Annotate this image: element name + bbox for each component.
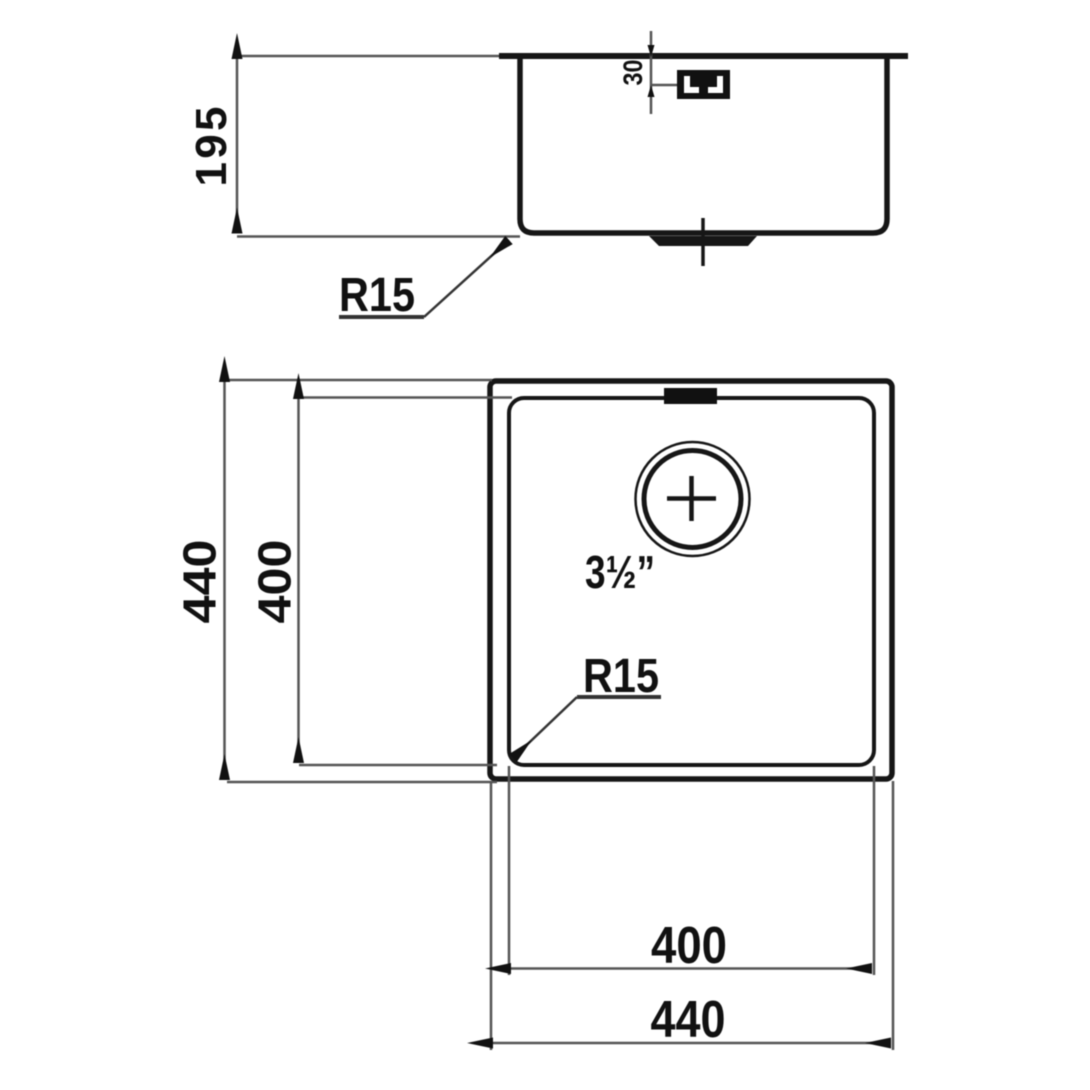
svg-text:3½”: 3½”: [585, 546, 655, 598]
svg-text:400: 400: [249, 540, 301, 624]
svg-text:R15: R15: [339, 269, 415, 322]
svg-text:400: 400: [651, 917, 727, 975]
svg-text:440: 440: [174, 540, 226, 624]
svg-text:440: 440: [651, 991, 726, 1049]
svg-text:195: 195: [187, 107, 236, 187]
svg-text:30: 30: [618, 60, 648, 86]
